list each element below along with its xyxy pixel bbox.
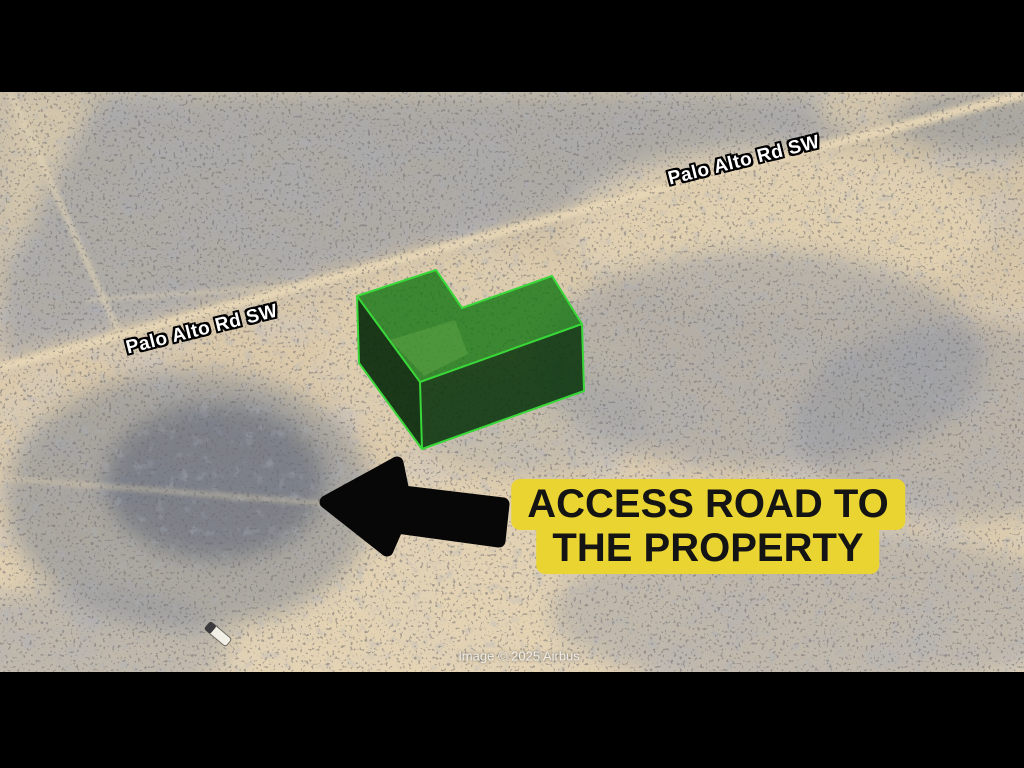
satellite-view: Palo Alto Rd SW Palo Alto Rd SW ACCESS R… bbox=[0, 92, 1024, 672]
letterbox-top bbox=[0, 0, 1024, 92]
letterbox-bottom bbox=[0, 672, 1024, 768]
land-listing-image: Palo Alto Rd SW Palo Alto Rd SW ACCESS R… bbox=[0, 0, 1024, 768]
terrain-canvas bbox=[0, 92, 1024, 672]
callout-line-2: THE PROPERTY bbox=[536, 523, 879, 574]
access-road-callout: ACCESS ROAD TO THE PROPERTY bbox=[511, 479, 905, 574]
imagery-attribution: Image © 2025 Airbus bbox=[458, 649, 580, 664]
